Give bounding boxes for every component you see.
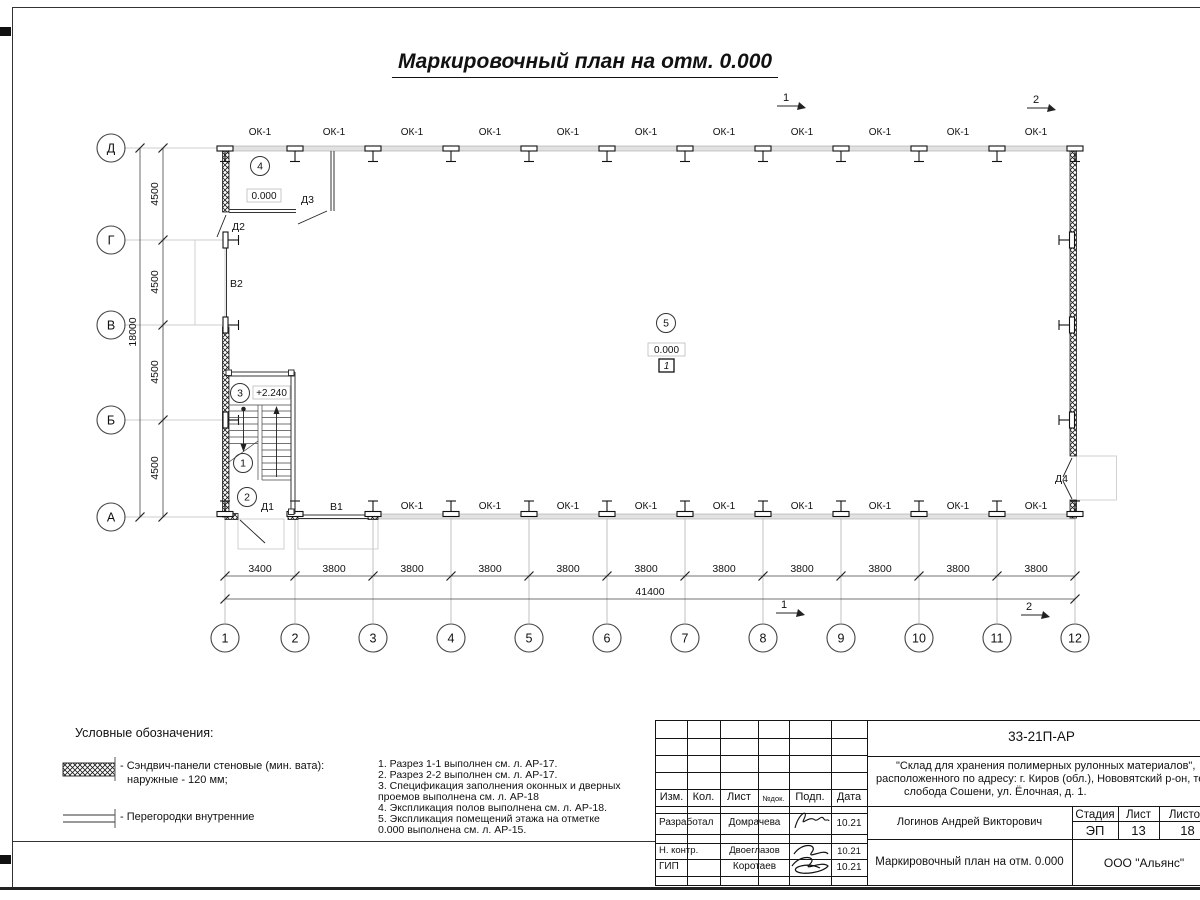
room-number: 1 — [240, 458, 246, 470]
row-date: 10.21 — [831, 818, 867, 829]
signature-scribble — [788, 840, 832, 878]
dim-value: 3800 — [556, 563, 580, 575]
project-desc-line: слобода Сошени, ул. Ёлочная, д. 1. — [904, 786, 1087, 798]
col-header-ndok: №док. — [758, 794, 789, 803]
row-role: Разработал — [659, 817, 713, 828]
room-markers: 4 3 1 2 5 0.000 +2.240 0.000 1 — [231, 157, 686, 507]
row-role: ГИП — [659, 861, 679, 872]
door-label: Д3 — [301, 194, 314, 206]
window-label: ОК-1 — [713, 127, 736, 138]
dim-value: 3800 — [790, 563, 814, 575]
window-label: ОК-1 — [713, 501, 736, 512]
window-label: ОК-1 — [869, 127, 892, 138]
axis-number: 6 — [604, 632, 611, 646]
chief-name: Логинов Андрей Викторович — [867, 816, 1072, 828]
stage-label: Стадия — [1072, 809, 1118, 821]
section-number: 1 — [781, 599, 787, 611]
window-label: ОК-1 — [635, 127, 658, 138]
dim-value: 3800 — [946, 563, 970, 575]
frame-outer-bottom — [0, 887, 1200, 890]
col-header-data: Дата — [831, 791, 867, 803]
axis-number-labels: 1 2 3 4 5 6 7 8 9 10 11 12 — [222, 632, 1082, 646]
window-label: ОК-1 — [557, 127, 580, 138]
col-header-izm: Изм. — [656, 791, 687, 803]
signature-scribble — [791, 808, 831, 835]
window-label: ОК-1 — [557, 501, 580, 512]
window-label: ОК-1 — [401, 127, 424, 138]
floor-plan-canvas: 4500 4500 4500 4500 18000 3400 3800 3800… — [0, 0, 1200, 700]
axis-letter: В — [107, 319, 115, 333]
window-label: ОК-1 — [401, 501, 424, 512]
section-marks: 1 2 1 2 — [776, 92, 1056, 619]
dim-value: 3800 — [712, 563, 736, 575]
window-label: ОК-1 — [323, 127, 346, 138]
dim-value: 4500 — [149, 182, 161, 206]
section-number: 1 — [783, 92, 789, 104]
row-name: Коротаев — [720, 861, 789, 872]
window-label: ОК-1 — [479, 127, 502, 138]
window-label: ОК-1 — [249, 127, 272, 138]
col-header-list: Лист — [720, 791, 758, 803]
window-label: ОК-1 — [1025, 501, 1048, 512]
row-name: Двоеглазов — [720, 845, 789, 856]
window-label: ОК-1 — [1025, 127, 1048, 138]
floor-tag: 1 — [664, 361, 670, 372]
axis-extension-lines — [124, 148, 1075, 623]
legend-item-label: наружные - 120 мм; — [127, 774, 228, 786]
elevation-value: 0.000 — [654, 345, 679, 356]
sheets-label: Листов — [1159, 809, 1200, 821]
row-date: 10.21 — [831, 862, 867, 873]
axis-letter: Б — [107, 414, 115, 428]
room-number: 5 — [663, 318, 669, 330]
dim-value: 3800 — [400, 563, 424, 575]
axis-letter-labels: Д Г В Б А — [107, 142, 116, 525]
dim-value: 3800 — [322, 563, 346, 575]
title-block: Изм. Кол. Лист №док. Подп. Дата Разработ… — [655, 720, 1200, 886]
stair-direction-arrows — [241, 406, 280, 477]
room-number: 4 — [257, 161, 263, 173]
axis-number: 5 — [526, 632, 533, 646]
room-number: 2 — [244, 492, 250, 504]
frame-mark-bottom — [0, 855, 11, 864]
elevation-value: 0.000 — [251, 191, 276, 202]
drawing-title: Маркировочный план на отм. 0.000 — [867, 856, 1072, 868]
window-label: ОК-1 — [479, 501, 502, 512]
gate-label: В1 — [330, 501, 343, 513]
axis-number: 4 — [448, 632, 455, 646]
project-desc-line: "Склад для хранения полимерных рулонных … — [896, 760, 1195, 772]
axis-number: 7 — [682, 632, 689, 646]
door-label: Д2 — [232, 221, 245, 233]
legend-item-label: - Сэндвич-панели стеновые (мин. вата): — [120, 760, 324, 772]
door-label: Д1 — [261, 501, 274, 513]
axis-letter: А — [107, 511, 116, 525]
axis-number: 11 — [991, 632, 1004, 646]
window-label: ОК-1 — [791, 127, 814, 138]
dim-value: 3800 — [1024, 563, 1048, 575]
row-role: Н. контр. — [659, 845, 698, 856]
window-label: ОК-1 — [791, 501, 814, 512]
dimension-lines — [140, 148, 1075, 599]
legend-item-label: - Перегородки внутренние — [120, 811, 254, 823]
axis-number: 3 — [370, 632, 377, 646]
axis-letter: Д — [107, 142, 116, 156]
axis-number: 1 — [222, 632, 229, 646]
window-label: ОК-1 — [947, 127, 970, 138]
sheets-total: 18 — [1159, 823, 1200, 838]
stage-value: ЭП — [1072, 823, 1118, 838]
columns — [217, 146, 1083, 517]
legend-title: Условные обозначения: — [75, 726, 214, 740]
elevation-value: +2.240 — [256, 388, 287, 399]
dim-value: 3800 — [478, 563, 502, 575]
exterior-walls-hatched — [223, 146, 1077, 520]
dim-value: 4500 — [149, 270, 161, 294]
dim-value: 3400 — [248, 563, 272, 575]
axis-number-bubbles — [211, 624, 1089, 652]
sheet-label: Лист — [1118, 809, 1159, 821]
window-bands — [225, 146, 1075, 519]
window-label: ОК-1 — [947, 501, 970, 512]
window-label: ОК-1 — [869, 501, 892, 512]
project-code: 33-21П-АР — [867, 729, 1200, 744]
room-number: 3 — [237, 388, 243, 400]
row-date: 10.21 — [831, 846, 867, 857]
project-desc-line: расположенного по адресу: г. Киров (обл.… — [876, 773, 1200, 785]
col-header-kol: Кол. — [687, 791, 720, 803]
door-leaves — [217, 211, 1072, 543]
axis-number: 2 — [292, 632, 299, 646]
gate-label: В2 — [230, 278, 243, 290]
window-label: ОК-1 — [635, 501, 658, 512]
dim-value: 4500 — [149, 456, 161, 480]
dim-total: 41400 — [635, 586, 664, 598]
gate-and-partition-walls — [227, 151, 369, 519]
axis-letter: Г — [108, 234, 115, 248]
drawing-sheet: Маркировочный план на отм. 0.000 — [0, 0, 1200, 900]
sheet-number: 13 — [1118, 823, 1159, 838]
axis-number: 12 — [1068, 632, 1082, 646]
frame-inner-bottom — [12, 841, 655, 842]
door-label: Д4 — [1055, 473, 1068, 485]
col-header-podp: Подп. — [789, 791, 831, 803]
window-labels: ОК-1 ОК-1 ОК-1 ОК-1 ОК-1 ОК-1 ОК-1 ОК-1 … — [249, 127, 1048, 512]
axis-number: 9 — [838, 632, 845, 646]
company-name: ООО "Альянс" — [1072, 856, 1200, 870]
axis-number: 8 — [760, 632, 767, 646]
note-line: 0.000 выполнена см. л. АР-15. — [378, 824, 526, 836]
dim-value: 3800 — [634, 563, 658, 575]
section-number: 2 — [1026, 601, 1032, 613]
axis-letter-bubbles — [97, 134, 125, 531]
dim-value: 4500 — [149, 360, 161, 384]
dim-value: 3800 — [868, 563, 892, 575]
dim-total: 18000 — [127, 317, 139, 346]
axis-number: 10 — [912, 632, 926, 646]
row-name: Домрачева — [720, 817, 789, 828]
section-number: 2 — [1033, 94, 1039, 106]
